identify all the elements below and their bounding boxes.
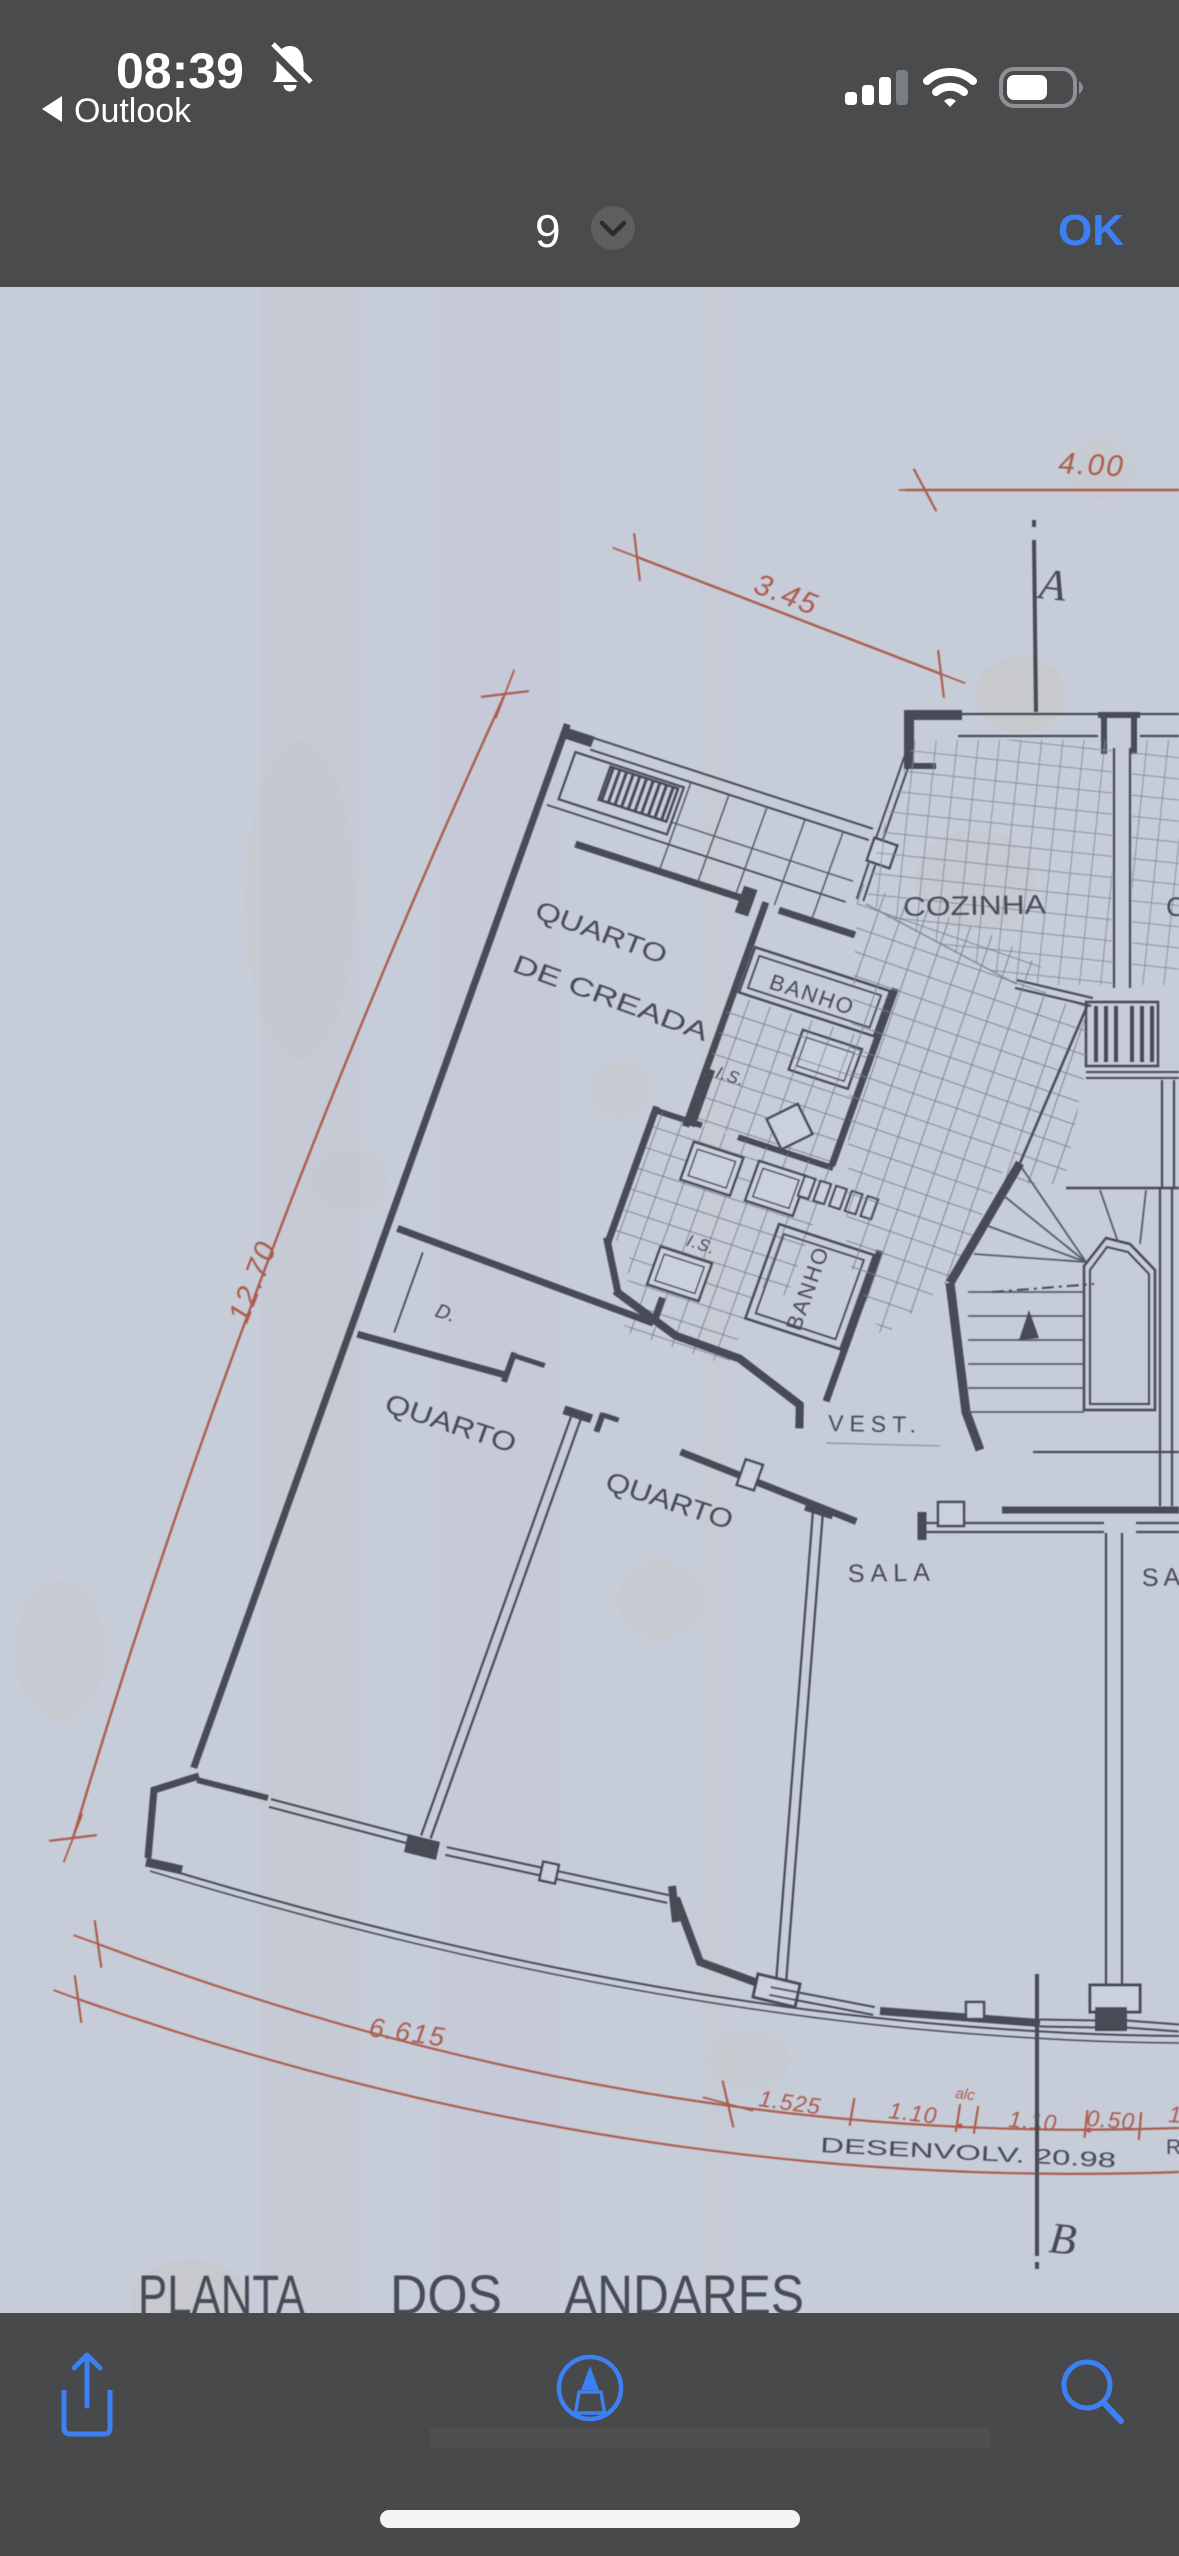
svg-text:0.50: 0.50 xyxy=(1086,2105,1136,2134)
svg-text:SA: SA xyxy=(1142,1563,1179,1592)
svg-text:SALA: SALA xyxy=(848,1558,936,1588)
svg-text:08:39: 08:39 xyxy=(116,43,244,99)
svg-text:4.00: 4.00 xyxy=(1058,447,1126,483)
svg-text:B: B xyxy=(1047,2213,1079,2265)
svg-text:alc: alc xyxy=(955,2085,977,2104)
svg-text:R: R xyxy=(1166,2136,1179,2159)
svg-text:OK: OK xyxy=(1058,206,1124,255)
svg-text:C: C xyxy=(1166,892,1179,922)
svg-text:9: 9 xyxy=(535,205,561,257)
svg-text:1: 1 xyxy=(1168,2101,1179,2128)
svg-text:Outlook: Outlook xyxy=(74,92,192,130)
svg-text:1.10: 1.10 xyxy=(1008,2106,1059,2136)
svg-text:VEST.: VEST. xyxy=(828,1410,922,1438)
